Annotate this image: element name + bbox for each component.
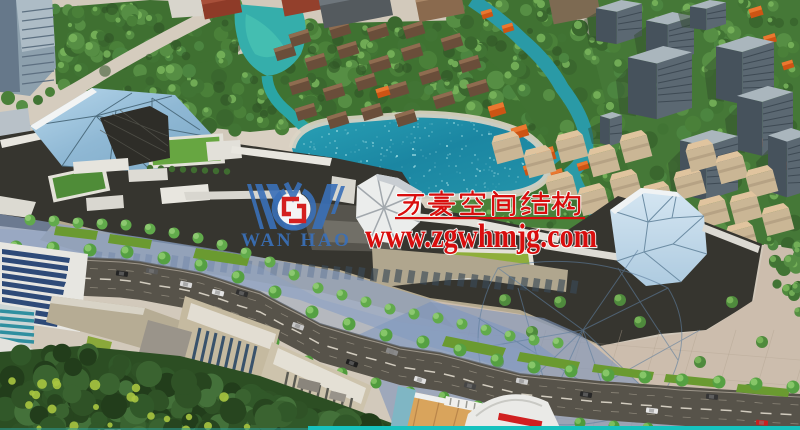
svg-text:www.zgwhmjg.com: www.zgwhmjg.com	[365, 218, 597, 255]
svg-text:WAN HAO: WAN HAO	[241, 230, 352, 251]
